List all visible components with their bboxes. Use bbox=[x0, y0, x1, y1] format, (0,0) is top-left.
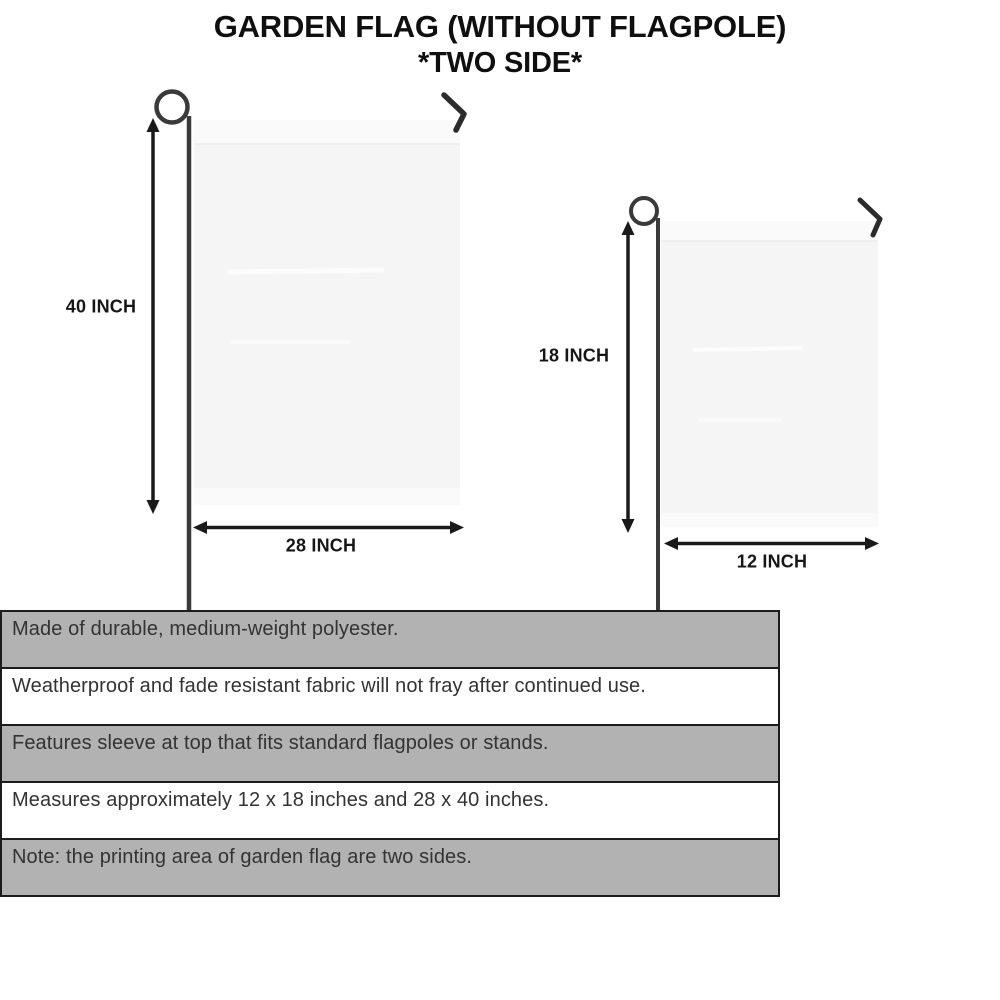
small-flag-height-label: 18 INCH bbox=[539, 346, 609, 367]
large-flag-group bbox=[147, 92, 465, 613]
large-flag-fabric bbox=[194, 120, 460, 505]
note-row-measurements: Measures approximately 12 x 18 inches an… bbox=[0, 781, 780, 840]
note-row-sleeve: Features sleeve at top that fits standar… bbox=[0, 724, 780, 783]
note-text: Note: the printing area of garden flag a… bbox=[12, 846, 472, 868]
large-flag-height-label: 40 INCH bbox=[66, 297, 136, 318]
note-row-printing: Note: the printing area of garden flag a… bbox=[0, 838, 780, 897]
small-flag-width-label: 12 INCH bbox=[737, 552, 807, 573]
large-flag-width-arrow bbox=[193, 521, 464, 534]
note-text: Measures approximately 12 x 18 inches an… bbox=[12, 789, 549, 811]
large-flag-wrinkle bbox=[230, 270, 382, 272]
small-flag-fabric bbox=[661, 221, 878, 527]
large-flag-sleeve bbox=[194, 120, 460, 144]
notes-panel: Made of durable, medium-weight polyester… bbox=[0, 610, 780, 897]
small-flag-group bbox=[622, 198, 881, 612]
large-flag-height-arrow bbox=[147, 118, 160, 514]
small-flagpole-loop bbox=[631, 198, 657, 224]
small-flag-bottom-fold bbox=[661, 513, 878, 527]
note-text: Features sleeve at top that fits standar… bbox=[12, 732, 549, 754]
large-flagpole-loop bbox=[157, 92, 188, 123]
note-row-weatherproof: Weatherproof and fade resistant fabric w… bbox=[0, 667, 780, 726]
note-row-material: Made of durable, medium-weight polyester… bbox=[0, 610, 780, 669]
large-flag-width-label: 28 INCH bbox=[286, 536, 356, 557]
small-flag-height-arrow bbox=[622, 221, 635, 533]
small-flag-wrinkle bbox=[695, 348, 800, 350]
garden-flag-infographic: GARDEN FLAG (WITHOUT FLAGPOLE) *TWO SIDE… bbox=[0, 0, 1000, 1000]
large-flag-bottom-fold bbox=[194, 488, 460, 505]
small-flag-sleeve bbox=[661, 221, 878, 241]
note-text: Made of durable, medium-weight polyester… bbox=[12, 618, 399, 640]
small-flag-width-arrow bbox=[664, 537, 879, 550]
note-text: Weatherproof and fade resistant fabric w… bbox=[12, 675, 646, 697]
